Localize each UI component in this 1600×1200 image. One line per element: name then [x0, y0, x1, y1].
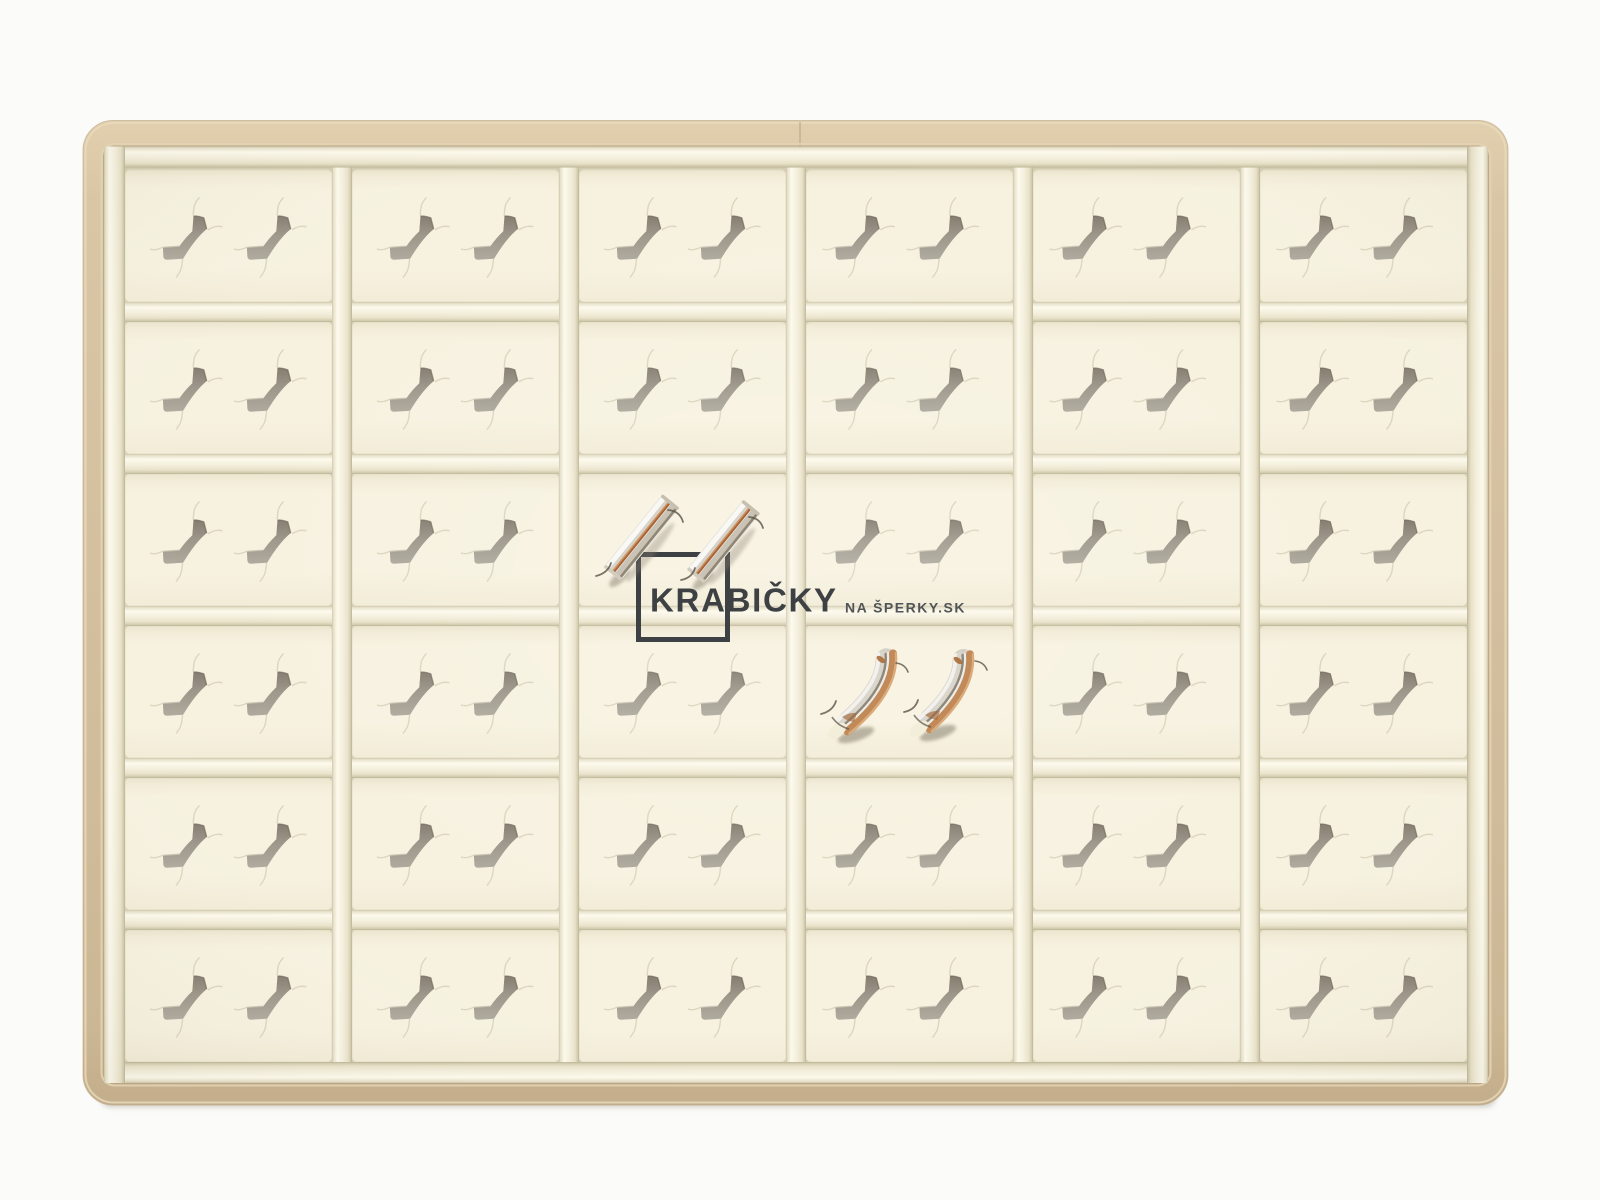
svg-text:KRABIČKY: KRABIČKY — [650, 581, 838, 619]
svg-text:NA ŠPERKY.SK: NA ŠPERKY.SK — [845, 598, 966, 615]
